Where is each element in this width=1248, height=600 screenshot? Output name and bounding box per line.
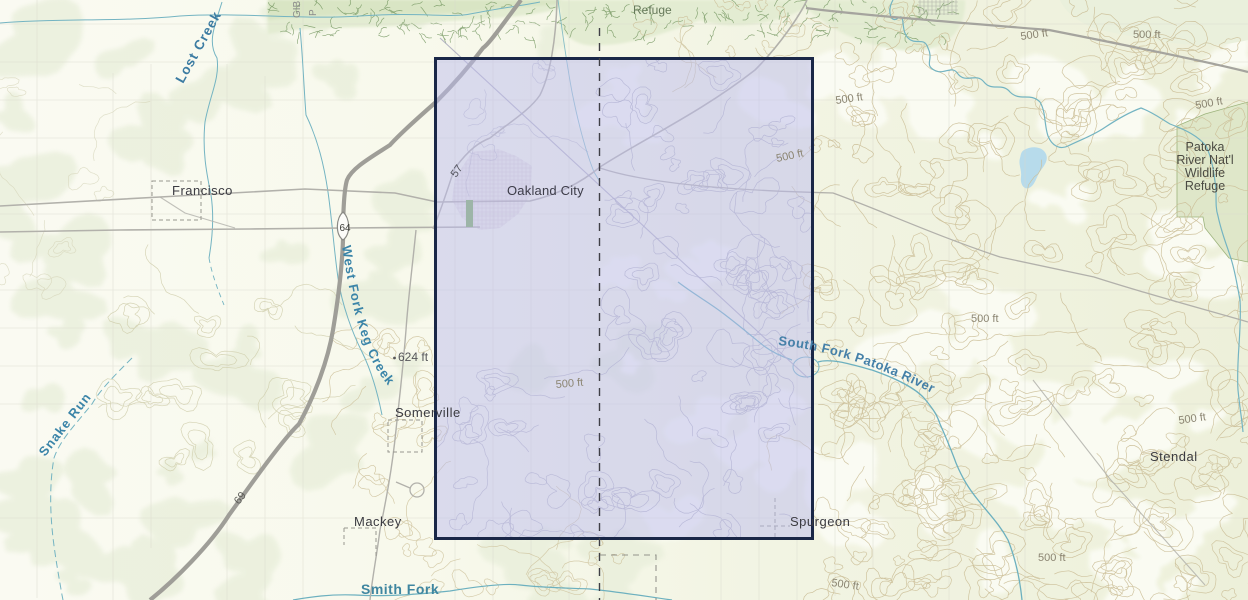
svg-text:64: 64 <box>339 223 351 234</box>
svg-text:P: P <box>308 9 319 16</box>
svg-text:Stendal: Stendal <box>1150 449 1198 464</box>
svg-text:GIB: GIB <box>292 0 303 18</box>
svg-text:Oakland City: Oakland City <box>507 183 584 198</box>
svg-text:500 ft: 500 ft <box>971 313 999 325</box>
svg-text:Smith Fork: Smith Fork <box>361 581 439 597</box>
svg-text:Somerville: Somerville <box>395 405 461 420</box>
svg-text:500 ft: 500 ft <box>1038 552 1066 564</box>
svg-text:Wildlife: Wildlife <box>1185 166 1225 180</box>
svg-text:624 ft: 624 ft <box>398 350 429 364</box>
svg-text:500 ft: 500 ft <box>555 377 583 391</box>
svg-text:500 ft: 500 ft <box>1133 29 1161 41</box>
svg-text:Refuge: Refuge <box>633 3 672 17</box>
svg-text:Spurgeon: Spurgeon <box>790 514 850 529</box>
svg-text:Francisco: Francisco <box>172 183 233 198</box>
svg-text:Refuge: Refuge <box>1185 179 1225 193</box>
svg-text:Patoka: Patoka <box>1186 140 1225 154</box>
svg-text:River Nat'l: River Nat'l <box>1176 153 1233 167</box>
svg-text:Mackey: Mackey <box>354 514 402 529</box>
